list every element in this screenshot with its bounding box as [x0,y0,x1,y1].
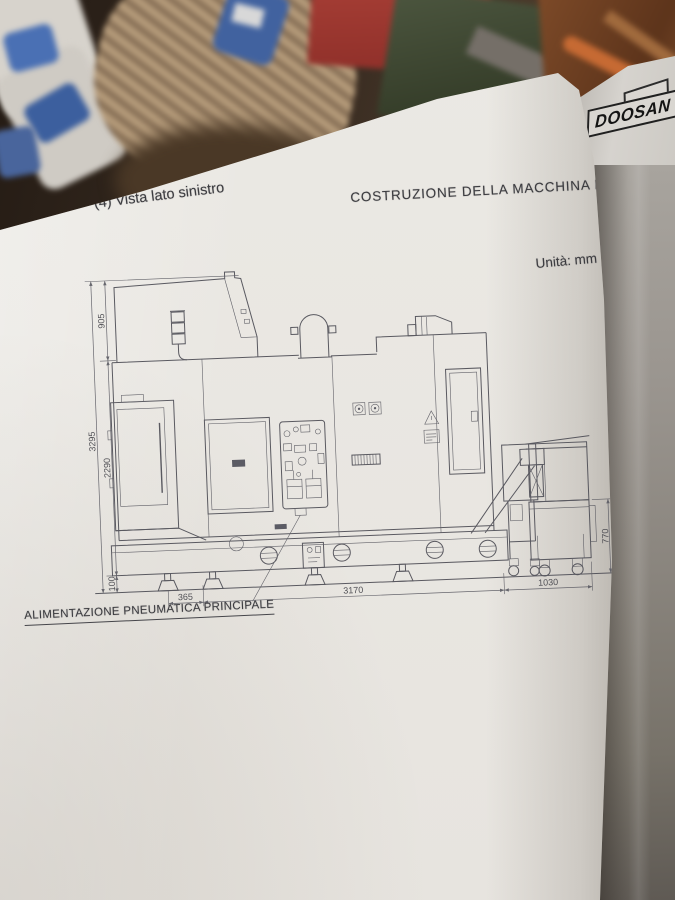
roof-line [111,333,486,365]
dim-main-length: 3170 [343,585,363,596]
base-control-box [302,542,324,568]
dim-left-offset: 365 [178,592,193,603]
dim-cart-height: 770 [600,528,611,543]
right-panel-window [446,368,485,474]
eyebolts [353,402,381,415]
top-vent-duct [407,315,452,336]
dim-conveyor-extension: 1030 [538,577,558,588]
pneumatic-inlet [295,508,306,515]
machine-body [102,262,494,546]
mist-collector-dome [290,314,337,359]
label-plate [275,524,287,529]
door-handle [232,459,245,467]
photo-of-manual-page: DOOSAN (4) Vista lato sinistro COSTRUZIO… [0,0,675,900]
vent-grille [352,454,380,465]
dimension-lines: 3295 905 2290 100 365 3170 1030 770 [81,261,620,611]
leveling-feet [158,564,413,591]
rear-column [114,271,258,363]
dim-total-height: 3295 [87,431,98,451]
machine-side-view-drawing: 3295 905 2290 100 365 3170 1030 770 [78,242,637,624]
dim-base-height: 100 [107,576,118,591]
base-frame [111,526,509,593]
dim-body-height: 2290 [102,458,113,478]
left-door [106,392,206,544]
doosan-logo: DOOSAN [584,90,675,137]
dim-top-section: 905 [96,313,107,328]
enclosure-outline [111,333,494,546]
doosan-logo-text: DOOSAN [595,95,671,132]
center-door [204,417,273,514]
signal-tower [170,311,187,361]
pneumatic-panel [280,420,328,509]
